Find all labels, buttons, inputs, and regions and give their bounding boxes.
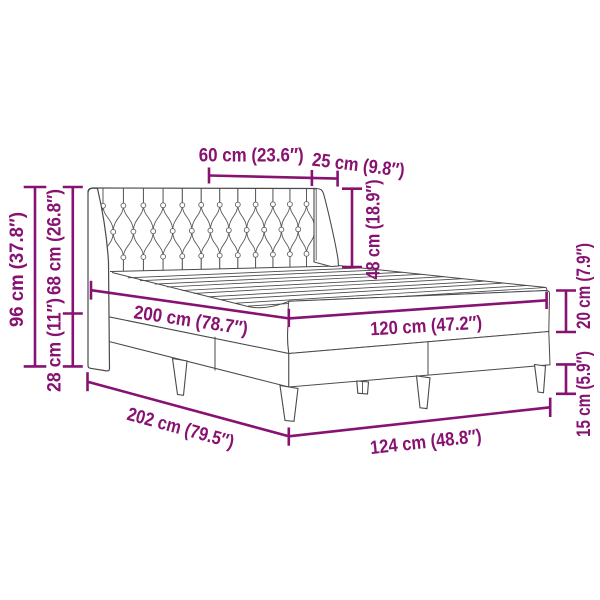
svg-text:68 cm (26.8″): 68 cm (26.8″) xyxy=(45,189,66,295)
svg-text:202 cm (79.5″): 202 cm (79.5″) xyxy=(125,404,237,453)
svg-text:96 cm (37.8″): 96 cm (37.8″) xyxy=(7,212,28,327)
svg-text:25 cm (9.8″): 25 cm (9.8″) xyxy=(311,150,406,182)
svg-text:20 cm (7.9″): 20 cm (7.9″) xyxy=(574,243,595,329)
svg-text:28 cm (11″): 28 cm (11″) xyxy=(45,298,66,392)
svg-text:48 cm (18.9″): 48 cm (18.9″) xyxy=(364,180,385,280)
svg-text:15 cm (5.9″): 15 cm (5.9″) xyxy=(574,351,595,437)
svg-text:124 cm (48.8″): 124 cm (48.8″) xyxy=(369,426,483,459)
svg-text:60 cm (23.6″): 60 cm (23.6″) xyxy=(199,145,304,166)
